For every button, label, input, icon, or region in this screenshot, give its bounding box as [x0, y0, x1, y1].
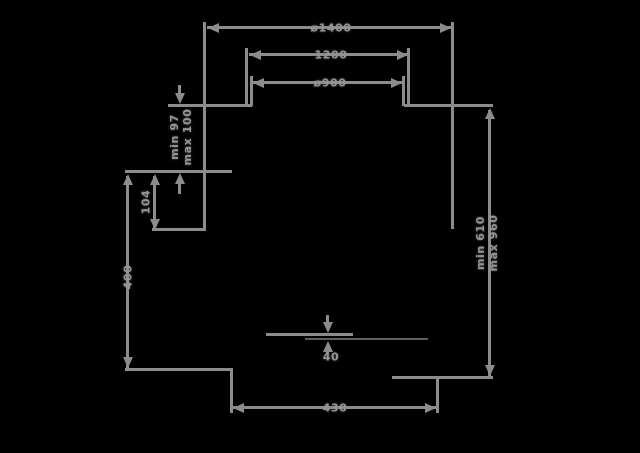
- dim-label-height-min: min 610: [474, 215, 487, 272]
- arrowhead-right: [425, 403, 436, 413]
- dimension-line: [125, 368, 233, 371]
- dim-label-mount-range: min 97 max 100: [168, 109, 194, 166]
- dimension-line: [436, 378, 439, 413]
- dimension-line: [404, 104, 493, 107]
- arrowhead-down: [323, 322, 333, 333]
- arrowhead-right: [391, 78, 402, 88]
- dim-label-gap: 40: [323, 351, 340, 364]
- arrowhead-left: [253, 78, 264, 88]
- dim-label-inner-diameter: ø900: [314, 77, 347, 90]
- arrowhead-left: [208, 23, 219, 33]
- arrowhead-up: [175, 173, 185, 184]
- dim-label-height-max: max 960: [487, 215, 500, 272]
- arrowhead-up: [123, 174, 133, 185]
- dim-label-base-width: 430: [323, 402, 348, 415]
- arrowhead-left: [250, 50, 261, 60]
- dimension-line: [168, 104, 252, 107]
- dimension-line: [203, 22, 206, 231]
- arrowhead-up: [485, 108, 495, 119]
- arrowhead-left: [233, 403, 244, 413]
- dimension-line: [266, 333, 353, 336]
- dimension-line: [245, 48, 248, 106]
- dimension-line: [305, 338, 428, 340]
- dimension-line: [152, 228, 206, 231]
- dim-label-side-offset: 104: [140, 190, 153, 215]
- arrowhead-down: [485, 365, 495, 376]
- dimension-line: [402, 76, 405, 106]
- arrowhead-right: [440, 23, 451, 33]
- arrowhead-up: [150, 174, 160, 185]
- dim-label-mid-width: 1200: [314, 49, 347, 62]
- dimension-drawing: ø1400 1200 ø900 min 97 max 100 104 400 m…: [0, 0, 640, 453]
- arrowhead-down: [123, 357, 133, 368]
- dim-label-height-range: min 610 max 960: [474, 215, 500, 272]
- arrowhead-down: [175, 93, 185, 104]
- dimension-line: [392, 376, 493, 379]
- dimension-line: [451, 22, 454, 229]
- dim-label-mount-max: max 100: [181, 109, 194, 166]
- arrowhead-down: [150, 219, 160, 230]
- arrowhead-right: [397, 50, 408, 60]
- dim-label-mount-min: min 97: [168, 109, 181, 166]
- dim-label-outer-diameter: ø1400: [310, 22, 351, 35]
- dim-label-left-height: 400: [122, 265, 135, 290]
